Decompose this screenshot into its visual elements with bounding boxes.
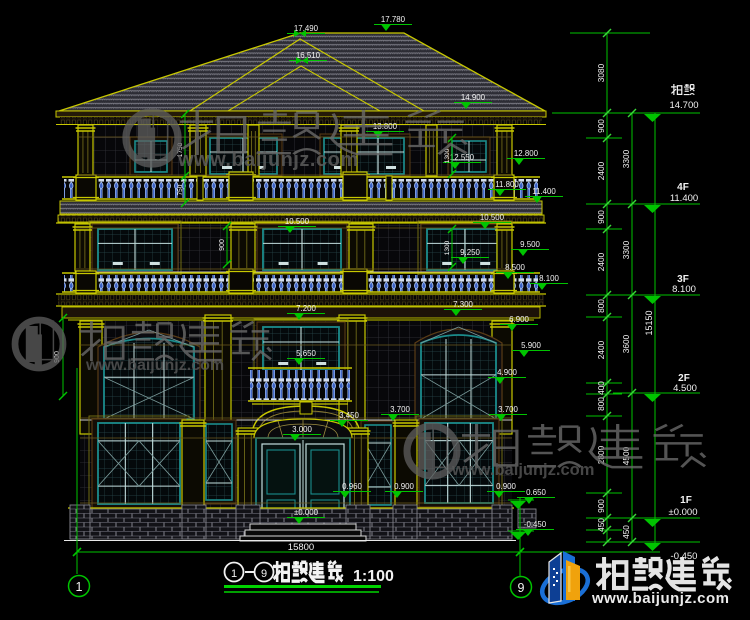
svg-text:7.300: 7.300 xyxy=(453,300,473,309)
svg-text:3.700: 3.700 xyxy=(390,405,410,414)
svg-text:8.100: 8.100 xyxy=(539,274,559,283)
svg-text:±0.000: ±0.000 xyxy=(294,508,319,517)
svg-text:www.baijunjz.com: www.baijunjz.com xyxy=(85,357,224,374)
svg-text:0.900: 0.900 xyxy=(394,482,414,491)
svg-text:17.490: 17.490 xyxy=(294,24,319,33)
svg-text:750: 750 xyxy=(177,184,184,195)
svg-text:450: 450 xyxy=(596,518,606,532)
svg-text:12.550: 12.550 xyxy=(450,153,475,162)
svg-text:1F: 1F xyxy=(680,495,692,506)
svg-text:0.960: 0.960 xyxy=(342,482,362,491)
svg-text:1:100: 1:100 xyxy=(353,568,394,585)
svg-text:8.500: 8.500 xyxy=(505,263,525,272)
svg-text:3300: 3300 xyxy=(621,149,631,168)
svg-text:11.800: 11.800 xyxy=(495,180,519,189)
svg-text:9: 9 xyxy=(518,581,525,595)
svg-text:9.250: 9.250 xyxy=(460,248,480,257)
svg-text:1: 1 xyxy=(231,568,237,580)
svg-text:14.900: 14.900 xyxy=(461,93,486,102)
svg-text:2400: 2400 xyxy=(596,252,606,271)
svg-text:450: 450 xyxy=(621,525,631,539)
svg-text:5.900: 5.900 xyxy=(521,341,541,350)
svg-text:17.780: 17.780 xyxy=(381,15,406,24)
svg-text:400: 400 xyxy=(596,381,606,395)
svg-text:15150: 15150 xyxy=(644,310,654,335)
svg-text:3.700: 3.700 xyxy=(498,405,518,414)
svg-text:800: 800 xyxy=(596,397,606,411)
svg-text:11.400: 11.400 xyxy=(670,193,698,204)
svg-text:900: 900 xyxy=(219,239,226,251)
svg-text:www.baijunjz.com: www.baijunjz.com xyxy=(451,461,594,479)
svg-text:10.500: 10.500 xyxy=(285,217,310,226)
svg-text:1: 1 xyxy=(76,580,83,594)
svg-text:15800: 15800 xyxy=(288,542,314,553)
svg-text:10.500: 10.500 xyxy=(480,213,505,222)
svg-text:3600: 3600 xyxy=(621,334,631,353)
svg-text:±0.000: ±0.000 xyxy=(669,507,698,518)
svg-text:-0.450: -0.450 xyxy=(524,520,547,529)
svg-text:3.000: 3.000 xyxy=(292,425,312,434)
svg-text:16.510: 16.510 xyxy=(296,51,321,60)
svg-text:www.baijunjz.com: www.baijunjz.com xyxy=(177,149,359,171)
svg-text:7.200: 7.200 xyxy=(296,304,316,313)
svg-text:4.900: 4.900 xyxy=(497,368,517,377)
svg-text:2400: 2400 xyxy=(596,340,606,359)
svg-text:2400: 2400 xyxy=(596,161,606,180)
svg-text:0.900: 0.900 xyxy=(496,482,516,491)
svg-text:8.100: 8.100 xyxy=(672,284,696,295)
svg-text:5.650: 5.650 xyxy=(296,349,316,358)
svg-text:900: 900 xyxy=(596,210,606,224)
svg-text:9: 9 xyxy=(261,568,267,580)
svg-text:14.700: 14.700 xyxy=(669,100,698,111)
svg-text:3080: 3080 xyxy=(596,63,606,82)
svg-text:6.900: 6.900 xyxy=(509,315,529,324)
svg-text:3.450: 3.450 xyxy=(339,411,359,420)
svg-text:900: 900 xyxy=(596,119,606,133)
svg-text:9.500: 9.500 xyxy=(520,240,540,249)
svg-text:900: 900 xyxy=(596,499,606,513)
svg-text:3300: 3300 xyxy=(621,240,631,259)
svg-text:www.baijunjz.com: www.baijunjz.com xyxy=(591,590,729,607)
svg-text:800: 800 xyxy=(596,299,606,313)
svg-text:4.500: 4.500 xyxy=(673,383,697,394)
svg-text:12.800: 12.800 xyxy=(514,149,539,158)
svg-text:0.650: 0.650 xyxy=(526,488,546,497)
svg-text:1300: 1300 xyxy=(444,240,451,255)
svg-text:11.400: 11.400 xyxy=(532,187,556,196)
svg-text:4F: 4F xyxy=(677,182,689,193)
